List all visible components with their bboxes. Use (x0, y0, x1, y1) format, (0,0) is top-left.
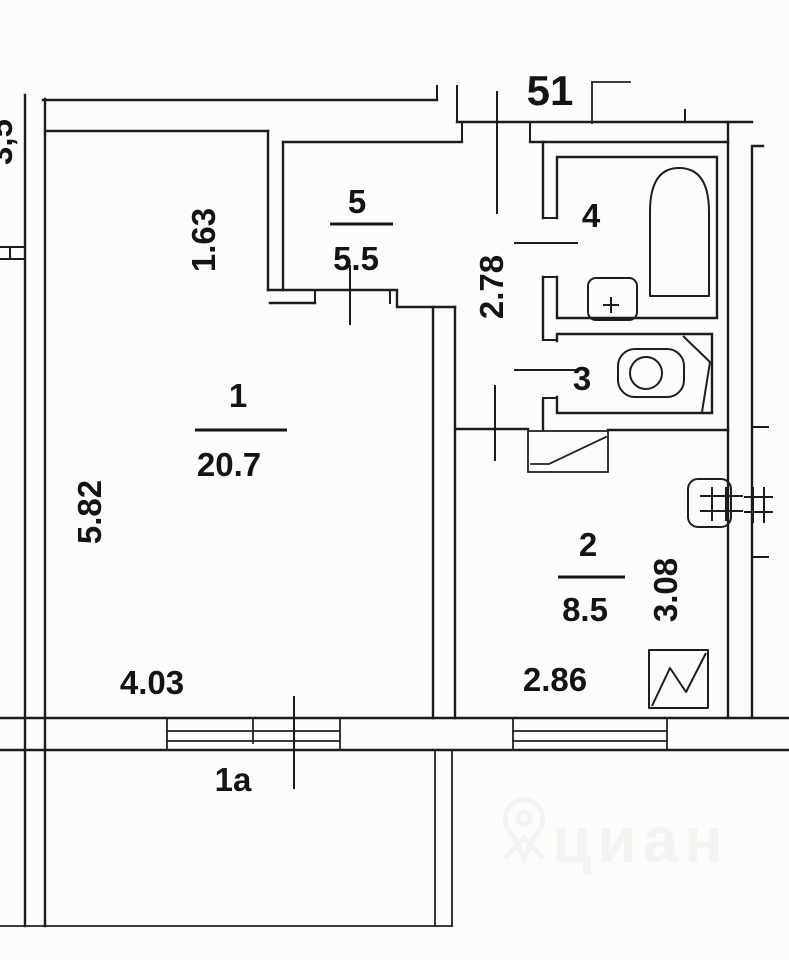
wall-joint-tick (0, 247, 25, 259)
riser-hatch (745, 488, 772, 522)
floor-plan: 51 3,5 5 5.5 1.63 1 20.7 5.82 4.03 2.78 … (0, 0, 789, 960)
room1-area: 20.7 (197, 446, 261, 483)
cian-pin-icon (505, 800, 543, 858)
stove-icon (649, 650, 708, 708)
room1-width-dim: 4.03 (120, 664, 184, 701)
room1-depth-dim: 5.82 (71, 480, 108, 544)
room2-number: 2 (579, 526, 597, 563)
toilet-icon (618, 336, 710, 412)
corridor-depth-dim: 2.78 (473, 255, 510, 319)
room4-number: 4 (582, 197, 601, 234)
walls (0, 82, 788, 926)
watermark: циан (505, 800, 729, 876)
window-room1 (167, 718, 340, 750)
bathtub-icon (650, 168, 709, 296)
bathroom-sink-icon (588, 278, 637, 320)
room2-width-dim: 2.86 (523, 661, 587, 698)
room5-number: 5 (348, 183, 366, 220)
room2-area: 8.5 (562, 591, 608, 628)
labels: 51 3,5 5 5.5 1.63 1 20.7 5.82 4.03 2.78 … (0, 67, 684, 798)
room5-width-dim: 1.63 (185, 208, 222, 272)
fixtures (588, 168, 743, 708)
watermark-text: циан (552, 804, 729, 876)
vent-duct (528, 431, 608, 472)
apartment-number: 51 (527, 67, 574, 114)
floor-plan-svg: 51 3,5 5 5.5 1.63 1 20.7 5.82 4.03 2.78 … (0, 0, 789, 960)
window-kitchen (513, 718, 667, 750)
room5-area: 5.5 (333, 240, 379, 277)
left-clipped-dimension: 3,5 (0, 119, 19, 165)
room2-depth-dim: 3.08 (647, 558, 684, 622)
room1a-number: 1a (215, 761, 252, 798)
room3-number: 3 (573, 360, 591, 397)
landing-bracket (592, 82, 630, 123)
room1-number: 1 (229, 377, 247, 414)
kitchen-sink-icon (688, 479, 743, 527)
